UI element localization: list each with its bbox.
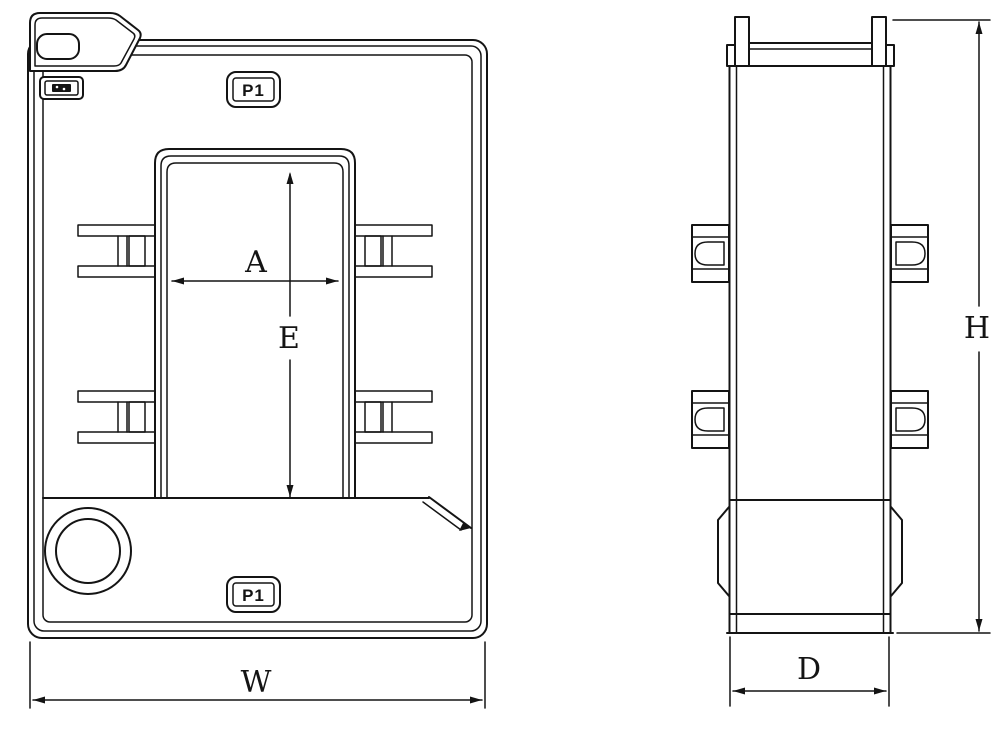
window-outline-mid (161, 156, 349, 498)
terminal-label-bottom-text: P1 (242, 586, 265, 605)
side-top-crossbar (749, 43, 872, 66)
brand-logo-icon (52, 84, 71, 92)
dim-d-arrow-right (874, 688, 886, 695)
dim-h-label: H (964, 311, 990, 346)
side-top-nub-left (727, 45, 735, 66)
dim-e-arrow-bottom (287, 485, 294, 497)
dim-d-label: D (797, 652, 821, 687)
dimension-e: E (278, 172, 300, 497)
corner-tab-outline (30, 13, 141, 71)
ear-upper-right (891, 225, 928, 282)
window-outline-outer (155, 149, 355, 498)
technical-drawing: P1 P1 A (0, 0, 1000, 748)
dimension-w: W (30, 642, 485, 708)
dim-d-arrow-left (733, 688, 745, 695)
front-body-outline-inner (43, 55, 472, 622)
terminal-label-top-text: P1 (242, 81, 265, 100)
window-outline-inner (167, 163, 343, 498)
dimension-h: H (893, 20, 990, 633)
dim-w-arrow-right (470, 697, 482, 704)
brand-logo-detail (63, 88, 66, 91)
dim-h-arrow-bottom (976, 619, 983, 631)
side-flap-left (718, 507, 729, 596)
dim-e-label: E (278, 321, 300, 356)
dimension-d: D (730, 637, 889, 706)
side-top-post-left (735, 17, 749, 66)
ear-lower-left (692, 391, 729, 448)
dim-h-arrow-top (976, 22, 983, 34)
clip-lower-left (78, 391, 155, 443)
dimension-a: A (172, 245, 338, 285)
terminal-label-top: P1 (227, 72, 280, 107)
side-view: H D (692, 17, 990, 706)
side-top-post-right (872, 17, 886, 66)
hole-inner-ring (56, 519, 120, 583)
side-top-nub-right (886, 45, 894, 66)
dim-w-label: W (241, 665, 272, 700)
ear-upper-left (692, 225, 729, 282)
dim-a-arrow-left (172, 278, 184, 285)
drawing-canvas: P1 P1 A (0, 0, 1000, 748)
clip-upper-left (78, 225, 155, 277)
clip-upper-right (355, 225, 432, 277)
brand-mark-box (40, 77, 83, 99)
hole-outer-ring (45, 508, 131, 594)
terminal-label-bottom: P1 (227, 577, 280, 612)
side-flap-right (891, 507, 902, 596)
dim-a-label: A (244, 245, 267, 280)
front-body-outline-outer (28, 40, 487, 638)
front-body-outline-mid (34, 46, 481, 631)
dim-w-arrow-left (33, 697, 45, 704)
front-view: P1 P1 A (28, 13, 487, 708)
dim-a-arrow-right (326, 278, 338, 285)
clip-lower-right (355, 391, 432, 443)
ear-lower-right (891, 391, 928, 448)
cover-chamfer-outer (429, 497, 471, 528)
brand-logo-detail (56, 86, 59, 89)
dim-e-arrow-top (287, 172, 294, 184)
